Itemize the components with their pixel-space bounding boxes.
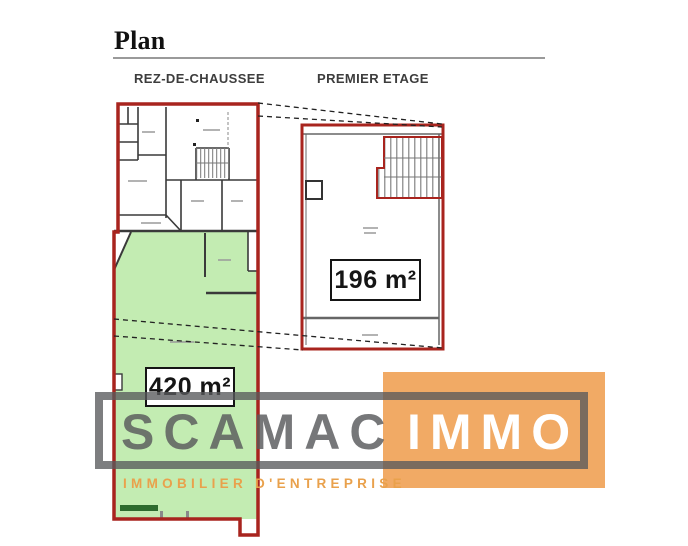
column-marker — [193, 143, 196, 146]
ground-floor-plan — [114, 104, 258, 535]
first-floor-plan — [302, 125, 443, 349]
wall-niche — [306, 181, 322, 199]
area-badge-first: 196 m² — [330, 259, 421, 301]
watermark-brand-scamac: SCAMAC — [121, 405, 394, 459]
first-floor-stairs — [377, 137, 442, 198]
plan-document: Plan REZ-DE-CHAUSSEE PREMIER ETAGE — [0, 0, 688, 546]
dark-green-counter — [120, 505, 158, 511]
watermark-brand-immo: IMMO — [407, 405, 579, 459]
column-marker — [196, 119, 199, 122]
watermark-tagline: IMMOBILIER D'ENTREPRISE — [123, 476, 406, 491]
ground-floor-walls — [114, 107, 258, 231]
